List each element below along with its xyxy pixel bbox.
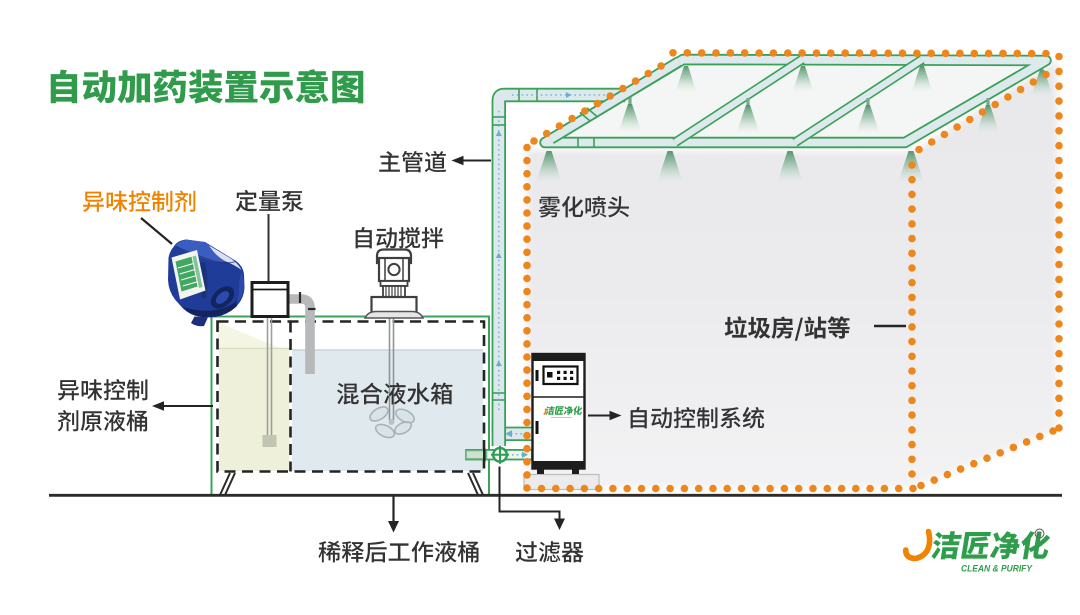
svg-text:CLEAN & PURIFY: CLEAN & PURIFY bbox=[961, 564, 1033, 574]
svg-text:R: R bbox=[1037, 531, 1042, 538]
